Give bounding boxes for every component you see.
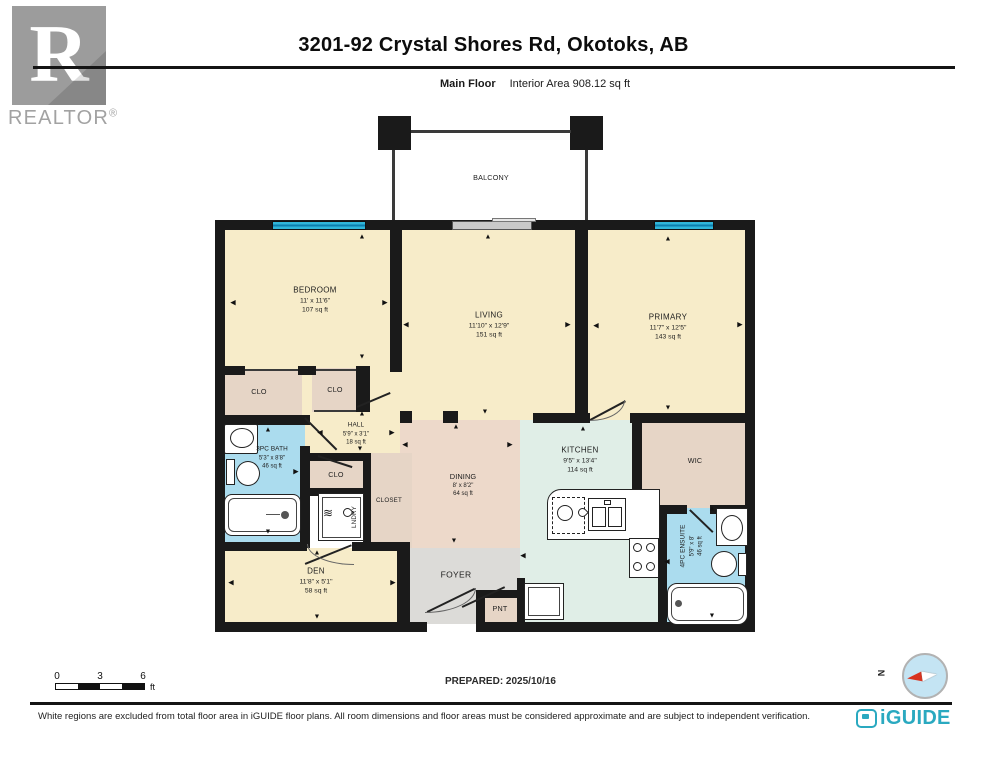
wall-bedroom-bottom-post1: [215, 366, 245, 375]
room-label-clo3: CLO: [328, 470, 343, 480]
scale-bar: [55, 683, 145, 690]
measure-arrow-up-icon: ▲: [453, 424, 460, 431]
balcony-rail-top: [411, 130, 571, 133]
measure-arrow-left-icon: ◀: [593, 323, 598, 330]
realtor-logo-shadow: [48, 51, 106, 105]
balcony-pillar-left: [378, 116, 411, 150]
wall-bedroom-living: [390, 220, 402, 372]
shower-head-icon: [281, 511, 289, 519]
burner-3: [633, 562, 642, 571]
room-label-pnt: PNT: [493, 604, 508, 614]
wall-primary-bottom: [630, 413, 755, 423]
measure-arrow-up-icon: ▲: [265, 427, 272, 434]
bath-toilet-tank: [226, 459, 235, 485]
room-label-bath3pc: 3PC BATH5'3" x 8'8"46 sq ft: [256, 446, 288, 471]
measure-arrow-right-icon: ▶: [390, 580, 395, 587]
fridge-inner: [528, 587, 560, 616]
room-label-clo2: CLO: [327, 385, 342, 395]
wall-den-top-left: [215, 542, 307, 551]
iguide-camera-icon: [856, 709, 877, 728]
measure-arrow-up-icon: ▲: [580, 426, 587, 433]
sink-basin-right: [608, 507, 622, 527]
room-label-clo1: CLO: [251, 387, 266, 397]
bath-sink-icon: [230, 428, 254, 448]
measure-arrow-up-icon: ▲: [359, 411, 366, 418]
room-label-kitchen: KITCHEN9'5" x 13'4"114 sq ft: [561, 445, 598, 474]
washer-waves-icon: ≋: [323, 507, 333, 519]
wall-bath-right: [300, 446, 310, 548]
measure-arrow-down-icon: ▼: [359, 354, 366, 361]
compass-needle-white: [921, 669, 937, 681]
measure-arrow-down-icon: ▼: [314, 614, 321, 621]
compass-needle-red: [906, 671, 922, 683]
measure-arrow-left-icon: ◀: [228, 580, 233, 587]
measure-arrow-right-icon: ▶: [507, 442, 512, 449]
burner-1: [633, 543, 642, 552]
measure-arrow-left-icon: ◀: [520, 553, 525, 560]
bath-tub-icon: [224, 494, 301, 536]
sink-basin-left: [592, 507, 606, 527]
wall-outer-bottom-left: [215, 622, 427, 632]
compass-north-label: N: [876, 670, 886, 677]
measure-arrow-down-icon: ▼: [709, 613, 716, 620]
measure-arrow-down-icon: ▼: [265, 529, 272, 536]
measure-arrow-left-icon: ◀: [230, 300, 235, 307]
ensuite-tub-faucet: [675, 600, 682, 607]
room-label-primary: PRIMARY11'7" x 12'5"143 sq ft: [649, 312, 687, 341]
registered-mark: ®: [109, 107, 118, 119]
interior-area-label: Interior Area 908.12 sq ft: [510, 78, 630, 90]
measure-arrow-up-icon: ▲: [485, 234, 492, 241]
floor-subtitle: Main FloorInterior Area 908.12 sq ft: [440, 78, 630, 90]
clo1-bifold-line: [245, 369, 300, 371]
sliding-door-panel: [492, 218, 536, 222]
measure-arrow-right-icon: ▶: [382, 300, 387, 307]
wall-closet-left: [363, 453, 371, 550]
shower-spray-line: [266, 514, 280, 515]
header-rule: [33, 66, 955, 69]
disclaimer-text: White regions are excluded from total fl…: [38, 711, 810, 722]
measure-arrow-right-icon: ▶: [565, 322, 570, 329]
burner-2: [646, 543, 655, 552]
compass-icon: [902, 653, 948, 699]
floor-label: Main Floor: [440, 78, 496, 90]
iguide-wordmark: iGUIDE: [880, 707, 951, 730]
ensuite-toilet-icon: [711, 551, 737, 577]
sink-faucet: [604, 500, 611, 505]
wall-stub-dining-top: [443, 411, 458, 423]
wall-kitchen-top: [533, 413, 590, 423]
wall-hall-bottom: [305, 453, 371, 461]
footer-rule: [30, 702, 952, 705]
measure-arrow-down-icon: ▼: [482, 409, 489, 416]
measure-arrow-right-icon: ▶: [389, 430, 394, 437]
wall-stub-living-sw: [400, 411, 412, 423]
measure-arrow-right-icon: ▶: [737, 322, 742, 329]
measure-arrow-left-icon: ◀: [402, 442, 407, 449]
fridge-icon: [524, 583, 564, 620]
room-label-foyer: FOYER: [441, 569, 472, 580]
compass-needle: [906, 667, 944, 686]
measure-arrow-up-icon: ▲: [314, 550, 321, 557]
measure-arrow-up-icon: ▲: [665, 236, 672, 243]
scale-tick-6: 6: [140, 671, 146, 682]
page-title: 3201-92 Crystal Shores Rd, Okotoks, AB: [0, 34, 987, 57]
room-label-closet: CLOSET: [376, 497, 402, 505]
prepared-date: PREPARED: 2025/10/16: [445, 676, 556, 687]
floorplan-page: R REALTOR® 3201-92 Crystal Shores Rd, Ok…: [0, 0, 987, 768]
measure-arrow-left-icon: ◀: [664, 559, 669, 566]
dishwasher-dial: [557, 505, 573, 521]
measure-arrow-up-icon: ▲: [709, 506, 716, 513]
sliding-door-balcony: [452, 221, 532, 230]
scale-tick-0: 0: [54, 671, 60, 682]
window-primary: [654, 221, 714, 230]
scale-unit-label: ft: [150, 682, 155, 692]
balcony-rail-right: [585, 150, 588, 222]
iguide-logo: iGUIDE: [856, 707, 951, 730]
wall-bedroom-bottom-post2: [298, 366, 316, 375]
measure-arrow-right-icon: ▶: [293, 469, 298, 476]
balcony-pillar-right: [570, 116, 603, 150]
measure-arrow-up-icon: ▲: [359, 234, 366, 241]
scale-tick-3: 3: [97, 671, 103, 682]
wall-living-primary: [575, 220, 588, 423]
measure-arrow-down-icon: ▼: [665, 405, 672, 412]
room-label-laundry: LNDRY: [351, 506, 359, 528]
measure-arrow-down-icon: ▼: [357, 446, 364, 453]
clo2-bottom-line: [314, 410, 356, 412]
kitchen-sink-icon: [588, 498, 626, 531]
room-label-hall: HALL5'9" x 3'1"18 sq ft: [343, 422, 369, 447]
room-label-dining: DINING8' x 8'2"64 sq ft: [450, 472, 476, 498]
room-label-bedroom: BEDROOM11' x 11'6"107 sq ft: [293, 285, 336, 314]
window-bedroom: [272, 221, 366, 230]
room-label-living: LIVING11'10" x 12'9"151 sq ft: [469, 310, 510, 339]
room-label-den: DEN11'8" x 5'1"58 sq ft: [300, 566, 333, 595]
balcony-rail-left: [392, 150, 395, 222]
ensuite-sink-icon: [721, 515, 743, 541]
room-label-ensuite: 4PC ENSUITE5'9" x 8'46 sq ft: [680, 524, 705, 567]
measure-arrow-left-icon: ◀: [317, 430, 322, 437]
room-label-wic: WIC: [688, 456, 703, 466]
wall-den-foyer: [397, 542, 410, 632]
measure-arrow-down-icon: ▼: [451, 538, 458, 545]
ensuite-toilet-tank: [738, 553, 747, 576]
clo2-bifold-line: [316, 369, 358, 371]
room-label-balcony: BALCONY: [473, 173, 509, 183]
measure-arrow-left-icon: ◀: [403, 322, 408, 329]
burner-4: [646, 562, 655, 571]
stove-icon: [629, 538, 659, 578]
realtor-wordmark: REALTOR®: [8, 107, 118, 130]
